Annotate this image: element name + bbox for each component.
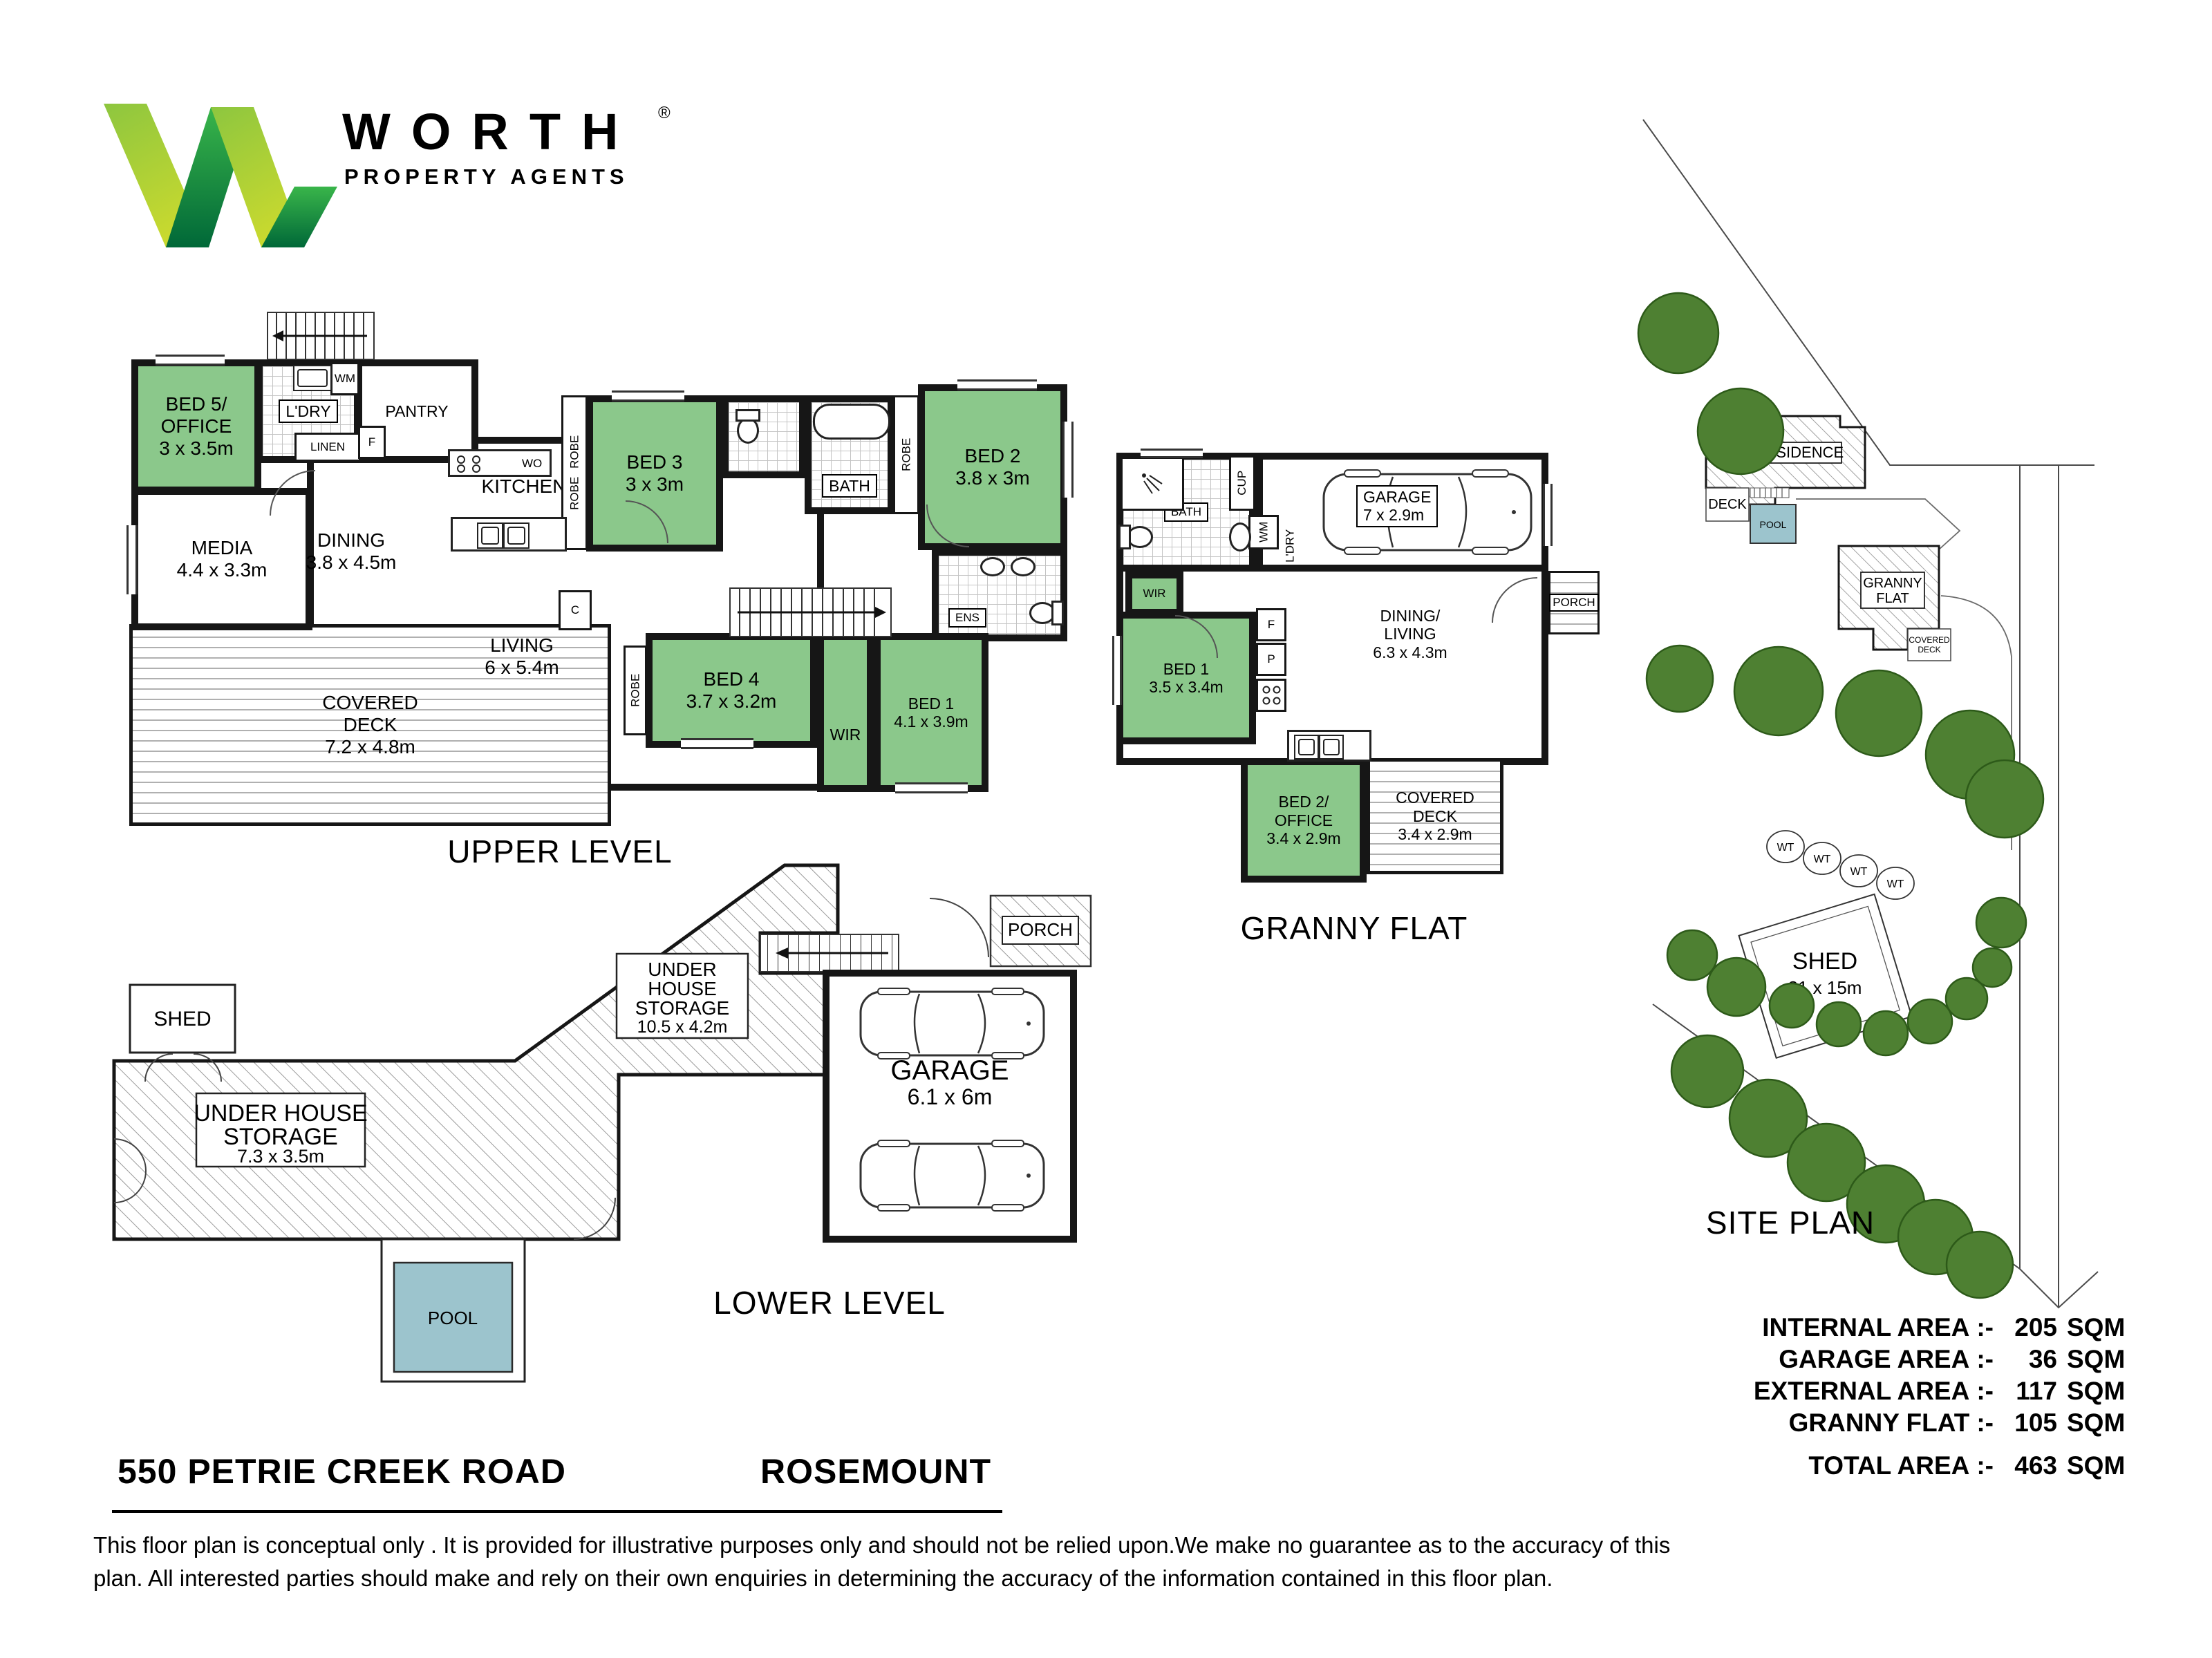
car-icon xyxy=(861,1140,1044,1211)
area-row: GARAGE AREA :- 36 SQM xyxy=(1680,1344,2143,1375)
room-label: BED 4 3.7 x 3.2m xyxy=(686,668,777,713)
granny-flat-caption: GRANNY FLAT xyxy=(1216,910,1492,947)
granny-label-line: FLAT xyxy=(1876,591,1909,606)
deck-label-line: DECK xyxy=(1918,645,1940,654)
toilet-icon xyxy=(1029,601,1064,625)
wt-label: WT xyxy=(1814,854,1831,865)
fridge-space: F xyxy=(358,426,386,459)
room-label: WIR xyxy=(830,726,861,744)
area-row: INTERNAL AREA :- 205 SQM xyxy=(1680,1312,2143,1344)
robe-label: ROBE xyxy=(568,435,581,469)
area-unit: SQM xyxy=(2067,1345,2143,1374)
area-separator: :- xyxy=(1976,1409,1994,1438)
granny-garage-label: GARAGE 7 x 2.9m xyxy=(1356,485,1438,527)
room-label: WIR xyxy=(1143,587,1165,601)
bed2-robe: ROBE xyxy=(893,395,919,514)
registered-mark: ® xyxy=(658,104,671,123)
room-label: BATH xyxy=(822,474,877,498)
site-plan: RESIDENCE DECK POOL GRANNY FLAT COVERED … xyxy=(1611,104,2212,1313)
room-label: C xyxy=(571,603,579,617)
island-sink-icon xyxy=(503,522,529,549)
label-line: STORAGE xyxy=(635,997,729,1019)
granny-bed2-office: BED 2/ OFFICE 3.4 x 2.9m xyxy=(1241,758,1367,883)
shower-icon xyxy=(1138,470,1166,498)
granny-washing-machine: WM xyxy=(1248,515,1279,549)
robe-label: ROBE xyxy=(628,674,642,707)
basin-icon xyxy=(1011,557,1035,576)
window xyxy=(1112,636,1122,705)
granny-fridge: F xyxy=(1256,608,1286,641)
area-separator: :- xyxy=(1976,1313,1994,1342)
linen-cupboard: LINEN xyxy=(294,433,361,462)
address-suburb: ROSEMOUNT xyxy=(760,1451,991,1491)
area-separator: :- xyxy=(1976,1451,1994,1480)
room-label: MEDIA 4.4 x 3.3m xyxy=(177,537,268,581)
kitchen-bench: WO xyxy=(448,449,552,477)
porch-label: PORCH xyxy=(1008,919,1073,940)
room-label: BED 3 3 x 3m xyxy=(626,451,684,496)
area-value: 117 xyxy=(2002,1377,2057,1406)
room-label: COVERED DECK 3.4 x 2.9m xyxy=(1396,789,1474,843)
area-label: GRANNY FLAT xyxy=(1789,1409,1970,1438)
garage-dims: 6.1 x 6m xyxy=(908,1084,993,1109)
wt-label: WT xyxy=(1777,842,1794,854)
washing-machine: WM xyxy=(330,362,359,395)
storage-right-label: UNDER HOUSE STORAGE 10.5 x 4.2m xyxy=(617,954,748,1038)
lower-porch: PORCH xyxy=(930,896,1091,966)
shed-label: SHED xyxy=(1792,948,1857,974)
window xyxy=(957,379,1037,390)
room-label: L'DRY xyxy=(1283,529,1297,563)
site-pool-label: POOL xyxy=(1760,519,1787,530)
window xyxy=(681,738,753,749)
granny-wir: WIR xyxy=(1125,572,1183,616)
car-icon xyxy=(861,988,1044,1059)
area-unit: SQM xyxy=(2067,1313,2143,1342)
brand-name: WORTH xyxy=(342,102,639,161)
storage-left-label: UNDER HOUSE STORAGE 7.3 x 3.5m xyxy=(194,1093,367,1167)
room-bed5-office: BED 5/ OFFICE 3 x 3.5m xyxy=(131,359,261,493)
area-unit: SQM xyxy=(2067,1377,2143,1406)
room-wc xyxy=(722,395,806,478)
address-underline xyxy=(112,1510,1002,1513)
room-label: BED 1 3.5 x 3.4m xyxy=(1149,660,1223,697)
label-line: HOUSE xyxy=(648,978,717,999)
wt-label: WT xyxy=(1850,866,1868,878)
granny-laundry-label: L'DRY xyxy=(1280,515,1300,577)
room-label: WM xyxy=(1257,522,1271,543)
upper-top-stairs xyxy=(267,312,375,360)
granny-pantry: P xyxy=(1256,643,1286,676)
area-label: TOTAL AREA xyxy=(1808,1451,1969,1480)
bathtub-icon xyxy=(813,404,890,440)
sink-icon xyxy=(1294,735,1319,760)
window xyxy=(1141,449,1203,458)
label-line: UNDER xyxy=(648,959,717,980)
brand-tagline: PROPERTY AGENTS xyxy=(344,164,629,189)
pool-label: POOL xyxy=(428,1308,478,1328)
lower-pool: POOL xyxy=(382,1239,525,1382)
deck-label-line: COVERED xyxy=(1909,635,1950,645)
wall-oven-label: WO xyxy=(522,457,542,471)
room-label: BED 2 3.8 x 3m xyxy=(955,445,1029,489)
room-label: BED 2/ OFFICE 3.4 x 2.9m xyxy=(1266,793,1340,847)
granny-shower xyxy=(1121,457,1184,511)
room-label: BED 5/ OFFICE 3 x 3.5m xyxy=(159,393,233,460)
label-line: UNDER HOUSE xyxy=(194,1100,367,1127)
area-separator: :- xyxy=(1976,1345,1994,1374)
room-label: P xyxy=(1267,652,1275,666)
island-sink-icon xyxy=(477,522,503,549)
area-label: GARAGE AREA xyxy=(1779,1345,1969,1374)
area-value: 36 xyxy=(2002,1345,2057,1374)
worth-w-logo-icon xyxy=(97,90,346,263)
area-summary: INTERNAL AREA :- 205 SQM GARAGE AREA :- … xyxy=(1680,1312,2143,1482)
lower-level-caption: LOWER LEVEL xyxy=(691,1284,968,1321)
bed4-robe: ROBE xyxy=(624,646,647,735)
lower-garage: GARAGE 6.1 x 6m xyxy=(826,973,1074,1239)
room-label: F xyxy=(1268,618,1275,632)
cooktop-icon xyxy=(1260,683,1282,708)
area-separator: :- xyxy=(1976,1377,1994,1406)
toilet-icon xyxy=(735,409,760,444)
door-arc xyxy=(270,470,315,516)
toilet-icon xyxy=(1118,525,1153,549)
shed-label: SHED xyxy=(153,1008,211,1030)
room-label: L'DRY xyxy=(279,399,337,423)
garage-label: GARAGE xyxy=(890,1055,1009,1086)
area-label: INTERNAL AREA xyxy=(1762,1313,1969,1342)
granny-label-line: GRANNY xyxy=(1863,576,1922,591)
room-wir: WIR xyxy=(817,633,874,792)
brand-logo: WORTH ® PROPERTY AGENTS xyxy=(97,90,719,276)
floorplan-page: { "logo": {"brand": "WORTH", "registered… xyxy=(0,0,2212,1658)
room-label: CUP xyxy=(1235,471,1249,496)
window xyxy=(895,782,968,793)
disclaimer-text: This floor plan is conceptual only . It … xyxy=(93,1529,2160,1595)
upper-bottom-stairs xyxy=(729,587,892,637)
laundry-sink-icon xyxy=(293,365,332,391)
area-value: 105 xyxy=(2002,1409,2057,1438)
granny-cupboard: CUP xyxy=(1229,455,1255,511)
room-bed1: BED 1 4.1 x 3.9m xyxy=(874,633,988,792)
room-label: ENS xyxy=(948,608,986,628)
robe-label: ROBE xyxy=(568,477,581,510)
granny-covered-deck: COVERED DECK 3.4 x 2.9m xyxy=(1367,758,1503,874)
room-label-living: LIVING 6 x 5.4m xyxy=(456,634,588,679)
window xyxy=(1062,422,1074,498)
room-label: F xyxy=(368,435,375,449)
sink-icon xyxy=(1319,735,1344,760)
room-label: COVERED DECK 7.2 x 4.8m xyxy=(322,692,418,759)
window xyxy=(156,355,225,366)
area-unit: SQM xyxy=(2067,1409,2143,1438)
wt-label: WT xyxy=(1887,878,1904,890)
room-label: BED 1 4.1 x 3.9m xyxy=(894,695,968,731)
room-label: PORCH xyxy=(1549,594,1598,612)
label-line: 7.3 x 3.5m xyxy=(237,1146,324,1167)
granny-porch: PORCH xyxy=(1548,571,1600,634)
robe-label: ROBE xyxy=(899,438,913,471)
area-row: GRANNY FLAT :- 105 SQM xyxy=(1680,1407,2143,1439)
area-row-total: TOTAL AREA :- 463 SQM xyxy=(1680,1450,2143,1482)
basin-icon xyxy=(1229,522,1251,552)
area-label: EXTERNAL AREA xyxy=(1754,1377,1969,1406)
area-value: 463 xyxy=(2002,1451,2057,1480)
site-granny-flat: GRANNY FLAT COVERED DECK xyxy=(1839,546,1951,661)
deck-label: DECK xyxy=(1708,497,1747,512)
room-label: LINEN xyxy=(310,440,345,454)
site-plan-caption: SITE PLAN xyxy=(1676,1204,1904,1241)
address-street: 550 PETRIE CREEK ROAD xyxy=(118,1451,566,1491)
window xyxy=(1543,484,1553,546)
basin-icon xyxy=(980,557,1005,576)
room-label-dining: DINING 3.8 x 4.5m xyxy=(289,529,413,574)
room-label: WM xyxy=(335,372,355,386)
lower-stairs xyxy=(760,934,899,972)
room-label: PANTRY xyxy=(385,402,448,420)
cooktop-icon xyxy=(454,454,486,473)
area-row: EXTERNAL AREA :- 117 SQM xyxy=(1680,1375,2143,1407)
granny-dining-label: DINING/ LIVING 6.3 x 4.3m xyxy=(1344,607,1476,661)
room-bed4: BED 4 3.7 x 3.2m xyxy=(646,633,817,748)
area-value: 205 xyxy=(2002,1313,2057,1342)
water-tanks: WT WT WT WT xyxy=(1767,831,1914,899)
window xyxy=(126,525,138,594)
granny-cooktop xyxy=(1256,679,1286,712)
hall-closet: C xyxy=(559,590,592,630)
window xyxy=(612,390,684,402)
label-line: 10.5 x 4.2m xyxy=(637,1017,728,1037)
area-unit: SQM xyxy=(2067,1451,2143,1480)
